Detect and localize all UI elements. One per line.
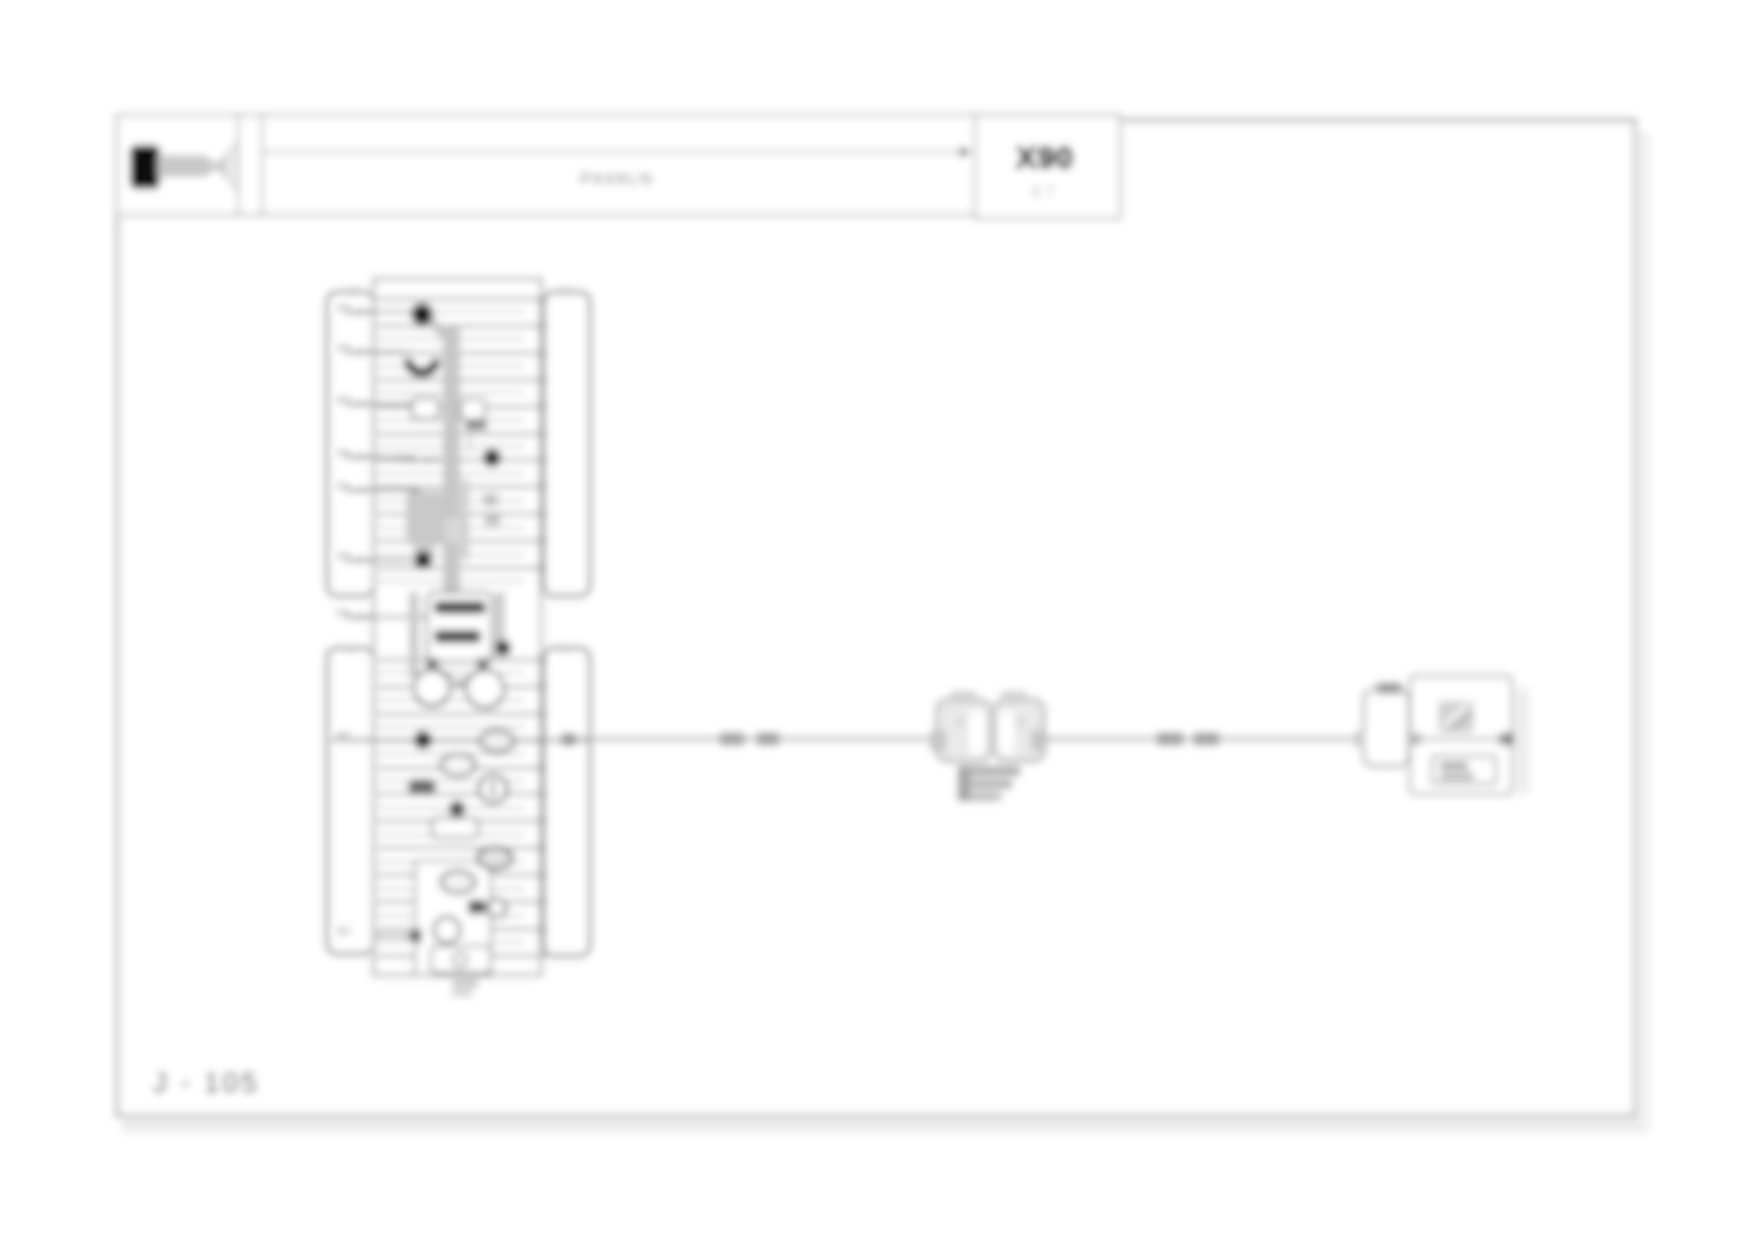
svg-text:1D5: 1D5 xyxy=(344,286,361,296)
svg-text:1D5: 1D5 xyxy=(344,644,361,654)
svg-text:67: 67 xyxy=(1032,182,1059,201)
svg-text:1D5: 1D5 xyxy=(557,286,574,296)
svg-text:X90: X90 xyxy=(1016,140,1074,175)
svg-text:1: 1 xyxy=(958,716,964,728)
svg-text:J - 105: J - 105 xyxy=(153,1067,260,1098)
svg-text:1D5: 1D5 xyxy=(557,644,574,654)
svg-text:PA09LN: PA09LN xyxy=(580,171,653,188)
svg-text:1: 1 xyxy=(1018,716,1024,728)
svg-text:F10 10A: F10 10A xyxy=(399,454,441,466)
